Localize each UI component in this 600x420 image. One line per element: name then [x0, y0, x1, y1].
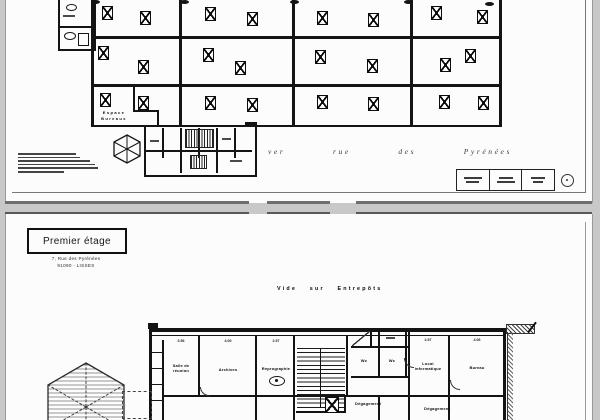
column-symbol — [478, 96, 489, 110]
sheet-gap-edge — [356, 201, 592, 204]
wall-segment — [405, 331, 407, 377]
fine-print-line — [222, 138, 231, 140]
room-label: Dégagement — [355, 402, 381, 407]
fine-print-line — [18, 160, 90, 162]
wall-tick — [152, 352, 162, 353]
sink-fixture — [78, 33, 89, 46]
room-label: Reprographie — [262, 367, 290, 372]
fine-print-line — [18, 164, 95, 166]
street-word: rue — [333, 147, 351, 156]
architect-info-block — [18, 153, 103, 174]
wall-segment — [91, 84, 502, 87]
column-symbol — [367, 59, 378, 73]
wall-segment — [351, 376, 409, 378]
shaft-diagonal — [352, 331, 370, 346]
room-label: Bureau — [470, 366, 485, 371]
fine-print-line — [18, 167, 98, 169]
copier-symbol-dot — [275, 379, 278, 382]
wall-segment — [292, 0, 295, 127]
column-symbol — [439, 95, 450, 109]
wall-tick — [152, 384, 162, 385]
wall-segment — [179, 0, 182, 127]
fine-print-line — [18, 171, 64, 173]
wall-segment — [351, 346, 409, 348]
door-mark — [485, 2, 494, 6]
dimension-label: 3.56 — [178, 339, 185, 343]
wall-segment — [346, 336, 348, 397]
sheet-gap-edge — [5, 201, 249, 204]
column-symbol — [98, 46, 109, 60]
wc-fixture — [66, 4, 77, 11]
room-label: Salle deréunion — [173, 364, 190, 373]
fine-print-line — [18, 157, 80, 159]
fine-print-line — [230, 160, 242, 162]
stair-stringer — [320, 348, 322, 408]
column-symbol — [368, 97, 379, 111]
column-symbol — [138, 96, 149, 110]
scanned-floor-plans: Espace Bureaux verruedesPyrénées — [0, 0, 600, 420]
column-symbol — [315, 50, 326, 64]
spiral-stair-hexagon — [112, 134, 142, 164]
column-symbol — [102, 6, 113, 20]
wall-tick — [152, 368, 162, 369]
door-mark — [290, 0, 299, 4]
wall-segment — [145, 150, 252, 152]
column-symbol — [205, 96, 216, 110]
wall-segment — [448, 336, 450, 397]
drawing-frame-bottom — [12, 192, 586, 193]
street-word: Pyrénées — [464, 147, 512, 156]
wall-segment — [60, 26, 91, 28]
fine-print-line — [18, 153, 76, 155]
column-symbol — [440, 58, 451, 72]
espace-bureaux-label: Espace Bureaux — [94, 110, 134, 121]
dimension-label: 4.00 — [225, 339, 232, 343]
drawing-frame-right — [585, 222, 586, 420]
column-symbol — [205, 7, 216, 21]
street-word: ver — [268, 147, 285, 156]
column-symbol — [465, 49, 476, 63]
column-symbol — [317, 11, 328, 25]
street-label: verruedesPyrénées — [268, 147, 512, 156]
wall-segment — [157, 110, 159, 126]
door-mark — [404, 0, 413, 4]
column-symbol — [100, 93, 111, 107]
column-symbol — [247, 12, 258, 26]
dimension-label: 4.06 — [474, 338, 481, 342]
wall-segment — [378, 331, 380, 377]
hexagonal-roof — [46, 359, 126, 420]
room-label: Localinformatique — [415, 362, 442, 371]
drawing-frame-right — [585, 0, 586, 193]
wall-segment — [370, 331, 372, 347]
stair-hatch — [190, 155, 207, 169]
roof-connector — [122, 391, 152, 419]
column-symbol — [138, 60, 149, 74]
wall-segment — [255, 336, 257, 420]
stamp-circle — [561, 174, 574, 187]
fine-print-line — [63, 15, 75, 17]
wall-tick — [152, 400, 162, 401]
stair-hatch — [185, 129, 214, 148]
title-block-cell — [522, 170, 554, 190]
address-line-1: 7, Rue des Pyrénées — [28, 256, 124, 261]
wall-segment — [499, 0, 502, 127]
title-block — [456, 169, 555, 191]
floor-title: Premier étage — [43, 236, 111, 247]
wall-segment — [150, 328, 506, 332]
wall-segment — [503, 328, 506, 420]
room-label: Wc — [361, 359, 367, 364]
column-symbol — [431, 6, 442, 20]
door-mark — [91, 0, 100, 4]
void-label: Vide sur Entrepôts — [277, 286, 382, 292]
room-label: Archives — [219, 368, 238, 373]
exterior-wall-hatch — [507, 332, 513, 420]
title-block-cell — [490, 170, 523, 190]
column-symbol — [368, 13, 379, 27]
title-block-cell — [457, 170, 490, 190]
address-line-2: 91090 - LISSES — [28, 263, 124, 268]
door-sill — [245, 122, 257, 125]
wall-segment — [234, 128, 236, 158]
column-symbol — [235, 61, 246, 75]
column-symbol — [203, 48, 214, 62]
door-mark — [180, 0, 189, 4]
column-symbol — [247, 98, 258, 112]
column-symbol — [325, 397, 339, 413]
floor-title-box: Premier étage — [27, 228, 127, 254]
wall-segment — [91, 36, 502, 39]
wall-segment — [162, 340, 164, 420]
column-symbol — [317, 95, 328, 109]
fine-print-line — [386, 337, 395, 339]
wall-segment — [162, 128, 164, 158]
sheet-gap-edge — [267, 201, 330, 204]
wall-segment — [410, 0, 413, 127]
stair-landing — [297, 336, 345, 348]
fine-print-line — [150, 140, 159, 142]
street-word: des — [398, 147, 416, 156]
column-symbol — [477, 10, 488, 24]
dimension-label: 2.97 — [273, 339, 280, 343]
wc-fixture — [64, 32, 76, 40]
wall-segment — [133, 110, 159, 112]
room-label: Dégagement — [424, 407, 450, 412]
espace-line2: Bureaux — [94, 116, 134, 122]
wall-segment — [133, 85, 135, 112]
room-label: Wc — [389, 359, 395, 364]
column-symbol — [140, 11, 151, 25]
wall-segment — [293, 336, 295, 420]
dimension-label: 2.97 — [425, 338, 432, 342]
